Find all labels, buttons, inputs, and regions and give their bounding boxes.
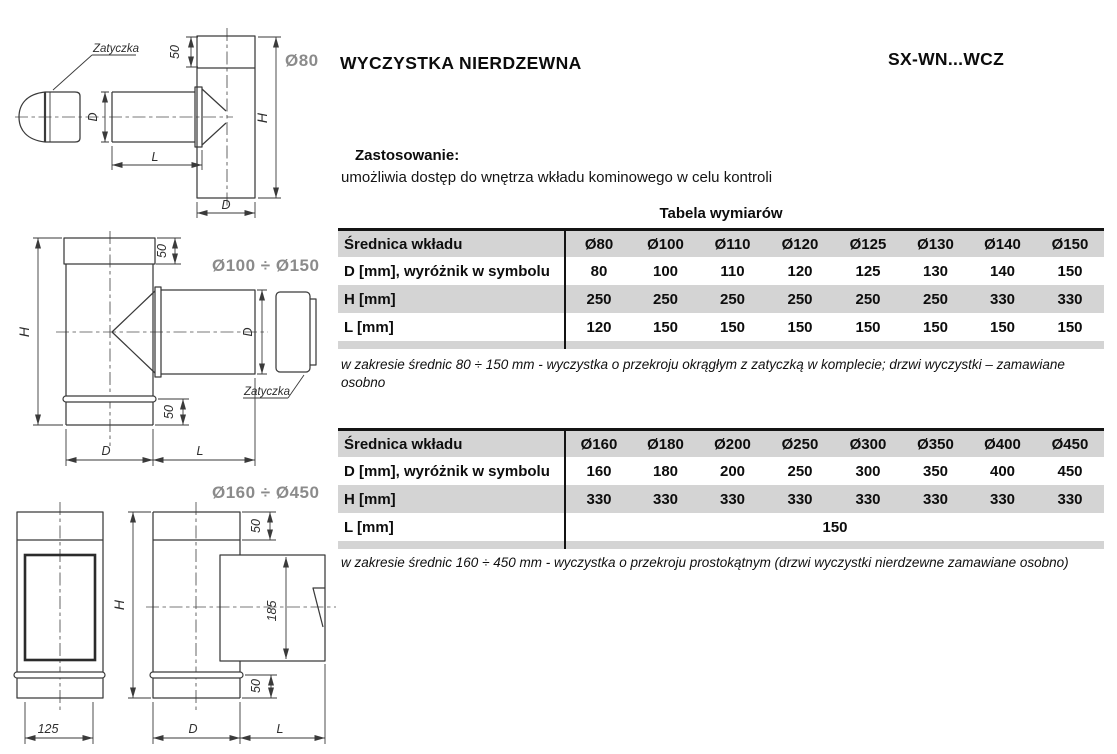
cell-label: Średnica wkładu — [338, 230, 565, 258]
cell-value: Ø160 — [565, 430, 632, 458]
cell-value: Ø110 — [699, 230, 766, 258]
dim-185: 185 — [265, 557, 286, 659]
cell-label: Średnica wkładu — [338, 430, 565, 458]
dims-bottom: D L — [66, 378, 255, 466]
cell-value: 250 — [766, 457, 834, 485]
table-bottom-strip — [338, 341, 1104, 349]
dim-d-label: D — [241, 327, 255, 336]
table-row: D [mm], wyróżnik w symbolu 80 100 110 12… — [338, 257, 1104, 285]
dim-d-label: D — [86, 112, 100, 121]
dim-50-label: 50 — [162, 405, 176, 419]
dim-h-label: H — [111, 599, 127, 610]
cell-value: 250 — [902, 285, 969, 313]
cell-value: Ø300 — [834, 430, 902, 458]
cell-label: L [mm] — [338, 513, 565, 541]
cell-value: 150 — [902, 313, 969, 341]
cell-value: 400 — [969, 457, 1036, 485]
product-code: SX-WN...WCZ — [888, 49, 1004, 70]
cell-label: D [mm], wyróżnik w symbolu — [338, 457, 565, 485]
cell-value: 150 — [1036, 257, 1104, 285]
cell-value: 120 — [766, 257, 834, 285]
dim-l-label: L — [152, 150, 159, 164]
cell-value: 120 — [565, 313, 632, 341]
cell-value: 330 — [969, 285, 1036, 313]
cell-value: 330 — [1036, 285, 1104, 313]
dim-d-label: D — [188, 722, 197, 736]
cell-value: 140 — [969, 257, 1036, 285]
dim-H: H — [111, 512, 151, 698]
table-small-note: w zakresie średnic 80 ÷ 150 mm - wyczyst… — [341, 356, 1105, 392]
cell-value: 330 — [766, 485, 834, 513]
cell-value: Ø125 — [834, 230, 902, 258]
dim-50-collar: 50 — [168, 37, 198, 67]
cell-value: 100 — [632, 257, 699, 285]
cell-value: Ø350 — [902, 430, 969, 458]
table-caption: Tabela wymiarów — [338, 205, 1104, 222]
table-row-header: Średnica wkładu Ø80 Ø100 Ø110 Ø120 Ø125 … — [338, 230, 1104, 258]
dim-50-label: 50 — [168, 45, 182, 59]
dim-185-label: 185 — [265, 601, 279, 622]
cell-value: 330 — [902, 485, 969, 513]
dim-50-top: 50 — [242, 512, 276, 540]
dim-L: L — [112, 146, 202, 170]
cell-value: 150 — [699, 313, 766, 341]
plug-shape — [276, 292, 316, 372]
cell-value: 450 — [1036, 457, 1104, 485]
page-title: WYCZYSTKA NIERDZEWNA — [340, 53, 582, 74]
cell-label: H [mm] — [338, 485, 565, 513]
cell-value: Ø130 — [902, 230, 969, 258]
cell-value: 330 — [1036, 485, 1104, 513]
cell-value: Ø180 — [632, 430, 699, 458]
cell-label — [338, 541, 565, 549]
variant-label-o100-o150: Ø100 ÷ Ø150 — [212, 256, 319, 276]
cell-value: Ø120 — [766, 230, 834, 258]
table-bottom-strip — [338, 541, 1104, 549]
cell-value: 150 — [632, 313, 699, 341]
dim-50-top: 50 — [155, 238, 181, 264]
application-heading: Zastosowanie: — [355, 147, 459, 164]
table-row: H [mm] 330 330 330 330 330 330 330 330 — [338, 485, 1104, 513]
application-description: umożliwia dostęp do wnętrza wkładu komin… — [341, 169, 772, 186]
cell-value — [565, 341, 1104, 349]
dim-50-label: 50 — [249, 519, 263, 533]
cell-value: 330 — [632, 485, 699, 513]
dim-D-spout: D — [86, 92, 109, 142]
variant-label-o80: Ø80 — [285, 51, 319, 71]
cell-value — [565, 541, 1104, 549]
table-row: H [mm] 250 250 250 250 250 250 330 330 — [338, 285, 1104, 313]
cell-value-merged: 150 — [565, 513, 1104, 541]
cell-value: 200 — [699, 457, 766, 485]
cell-value: 330 — [565, 485, 632, 513]
cell-value: Ø80 — [565, 230, 632, 258]
cell-value: 150 — [969, 313, 1036, 341]
dim-l-label: L — [277, 722, 284, 736]
dim-50-label: 50 — [155, 244, 169, 258]
dim-D-bottom: D — [197, 198, 255, 218]
dim-h-label: H — [16, 326, 32, 337]
cell-value: 250 — [632, 285, 699, 313]
cell-value: 330 — [699, 485, 766, 513]
cell-label: H [mm] — [338, 285, 565, 313]
cell-value: Ø100 — [632, 230, 699, 258]
cell-value: 80 — [565, 257, 632, 285]
cell-value: 160 — [565, 457, 632, 485]
cell-value: 125 — [834, 257, 902, 285]
cell-value: 300 — [834, 457, 902, 485]
cell-value: 330 — [834, 485, 902, 513]
table-row-header: Średnica wkładu Ø160 Ø180 Ø200 Ø250 Ø300… — [338, 430, 1104, 458]
cell-value: 150 — [1036, 313, 1104, 341]
cell-value: Ø140 — [969, 230, 1036, 258]
cell-value: 250 — [834, 285, 902, 313]
plug-callout: Zatyczka — [53, 43, 139, 90]
table-row-merged: L [mm] 150 — [338, 513, 1104, 541]
cell-value: Ø150 — [1036, 230, 1104, 258]
cell-value: 250 — [699, 285, 766, 313]
cell-value: Ø200 — [699, 430, 766, 458]
cell-value: 350 — [902, 457, 969, 485]
dim-H: H — [16, 238, 63, 425]
cell-label — [338, 341, 565, 349]
dim-125-label: 125 — [38, 722, 59, 736]
dim-H: H — [254, 37, 281, 198]
dim-h-label: H — [254, 112, 270, 123]
dim-50-bottom: 50 — [242, 675, 277, 698]
dim-l-label: L — [197, 444, 204, 458]
drawing-cleanout-o160-o450: 185 50 50 H 125 D L — [0, 472, 340, 752]
dim-d-label: D — [221, 198, 230, 212]
front-view — [14, 502, 105, 712]
cell-value: Ø250 — [766, 430, 834, 458]
plug-label: Zatyczka — [243, 386, 290, 398]
cell-value: 180 — [632, 457, 699, 485]
dimension-table-large: Średnica wkładu Ø160 Ø180 Ø200 Ø250 Ø300… — [338, 428, 1104, 549]
cell-value: Ø400 — [969, 430, 1036, 458]
dimension-table-small: Średnica wkładu Ø80 Ø100 Ø110 Ø120 Ø125 … — [338, 228, 1104, 349]
table-row: D [mm], wyróżnik w symbolu 160 180 200 2… — [338, 457, 1104, 485]
cell-value: 110 — [699, 257, 766, 285]
cell-value: 150 — [766, 313, 834, 341]
cell-value: 250 — [766, 285, 834, 313]
cell-value: 330 — [969, 485, 1036, 513]
door-handle-mark — [313, 588, 325, 627]
cell-label: L [mm] — [338, 313, 565, 341]
catalog-page: Zatyczka 50 H L D D Ø80 — [0, 0, 1117, 754]
table-row: L [mm] 120 150 150 150 150 150 150 150 — [338, 313, 1104, 341]
cell-label: D [mm], wyróżnik w symbolu — [338, 257, 565, 285]
cell-value: 150 — [834, 313, 902, 341]
table-large-note: w zakresie średnic 160 ÷ 450 mm - wyczys… — [341, 554, 1105, 572]
cell-value: 250 — [565, 285, 632, 313]
plug-label: Zatyczka — [92, 43, 139, 55]
pipe-body — [63, 238, 156, 425]
plug-callout: Zatyczka — [243, 375, 304, 398]
cell-value: Ø450 — [1036, 430, 1104, 458]
dim-50-label: 50 — [249, 679, 263, 693]
dim-d-label: D — [101, 444, 110, 458]
dim-50-bottom: 50 — [155, 399, 189, 425]
variant-label-o160-o450: Ø160 ÷ Ø450 — [212, 483, 319, 503]
drawing-tee-o80: Zatyczka 50 H L D D — [5, 22, 330, 227]
side-view — [146, 502, 336, 712]
cell-value: 130 — [902, 257, 969, 285]
